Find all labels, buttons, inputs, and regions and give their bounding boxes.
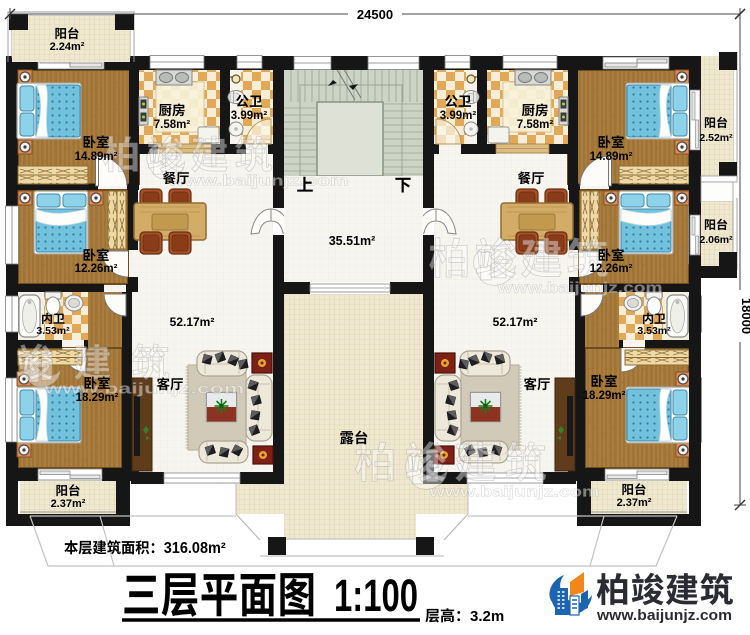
svg-text:3.99m²: 3.99m² <box>231 110 268 122</box>
svg-text:2.37m²: 2.37m² <box>617 497 652 509</box>
svg-text:3.53m²: 3.53m² <box>637 325 671 337</box>
svg-text:18.29m²: 18.29m² <box>583 390 626 402</box>
svg-text:52.17m²: 52.17m² <box>493 315 538 329</box>
svg-text:7.58m²: 7.58m² <box>517 119 554 131</box>
svg-text:14.89m²: 14.89m² <box>590 151 633 163</box>
svg-text:18.29m²: 18.29m² <box>76 392 119 404</box>
svg-text:www.baijunjz.com: www.baijunjz.com <box>428 484 599 501</box>
svg-text:2.52m²: 2.52m² <box>699 132 733 144</box>
svg-text:www.baijunjz.com: www.baijunjz.com <box>167 173 348 190</box>
svg-text:18000: 18000 <box>739 298 750 334</box>
svg-text:2.06m²: 2.06m² <box>699 234 733 246</box>
svg-text:www.baijunjz.com: www.baijunjz.com <box>596 608 732 624</box>
svg-text:24500: 24500 <box>357 7 393 22</box>
svg-text:3.2m: 3.2m <box>470 608 504 625</box>
svg-text:2.37m²: 2.37m² <box>51 498 86 510</box>
svg-text:316.08m²: 316.08m² <box>164 540 226 557</box>
svg-text:12.26m²: 12.26m² <box>590 263 633 275</box>
svg-text:7.58m²: 7.58m² <box>154 119 191 131</box>
svg-text:35.51m²: 35.51m² <box>329 234 376 248</box>
svg-text:2.24m²: 2.24m² <box>50 41 85 53</box>
svg-text:12.26m²: 12.26m² <box>75 263 118 275</box>
svg-text:www.baijunjz.com: www.baijunjz.com <box>43 381 245 398</box>
svg-text:14.89m²: 14.89m² <box>75 151 118 163</box>
svg-text:3.53m²: 3.53m² <box>36 325 70 337</box>
svg-text:52.17m²: 52.17m² <box>170 315 215 329</box>
svg-text:1:100: 1:100 <box>334 570 418 621</box>
svg-text:3.99m²: 3.99m² <box>440 110 477 122</box>
svg-text:www.baijunjz.com: www.baijunjz.com <box>496 280 662 297</box>
